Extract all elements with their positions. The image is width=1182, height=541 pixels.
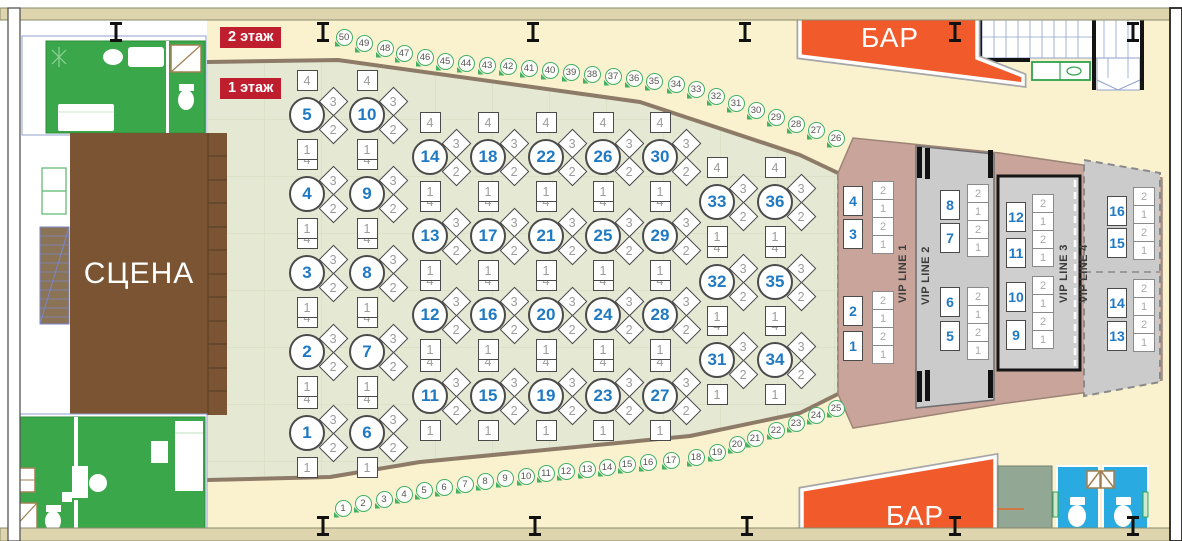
perimeter-seat-18[interactable]: 18 (688, 449, 705, 466)
vip-seat-column-3: 2121 (967, 185, 989, 257)
perimeter-seat-25[interactable]: 25 (828, 400, 845, 417)
table-number: 10 (349, 97, 385, 133)
perimeter-seat-38[interactable]: 38 (584, 66, 601, 83)
perimeter-seat-33[interactable]: 33 (688, 81, 705, 98)
table-number: 2 (289, 334, 325, 370)
vip-line-2-label: VIP LINE 2 (920, 246, 932, 305)
floor-1-badge: 1 этаж (220, 78, 281, 99)
vip-seat-1[interactable]: 1 (872, 309, 894, 328)
perimeter-seat-11[interactable]: 11 (538, 465, 555, 482)
perimeter-seat-49[interactable]: 49 (356, 35, 373, 52)
seat-4[interactable]: 4 (297, 70, 318, 91)
perimeter-seat-34[interactable]: 34 (668, 76, 685, 93)
seat-1[interactable]: 1 (297, 297, 318, 318)
vip-seat-1[interactable]: 1 (1133, 333, 1155, 352)
vip-line-1-label: VIP LINE 1 (897, 244, 909, 303)
table-number: 13 (412, 218, 448, 254)
vip-seat-2[interactable]: 2 (967, 287, 989, 306)
toilet-fixture-1 (1053, 492, 1058, 517)
vip-seat-1[interactable]: 1 (1032, 330, 1054, 349)
vip-seat-column-2: 2121 (872, 292, 894, 364)
seat-1[interactable]: 1 (297, 376, 318, 397)
table-number: 30 (642, 139, 678, 175)
perimeter-seat-50[interactable]: 50 (336, 29, 353, 46)
perimeter-seat-16[interactable]: 16 (640, 454, 657, 471)
perimeter-seat-37[interactable]: 37 (605, 68, 622, 85)
vip-line-3-label: VIP LINE 3 (1058, 244, 1070, 303)
table-number: 29 (642, 218, 678, 254)
perimeter-seat-17[interactable]: 17 (663, 452, 680, 469)
table-number: 3 (289, 255, 325, 291)
backstage-staircase (40, 227, 69, 324)
vip-seat-column-6: 2121 (1032, 277, 1054, 349)
vip-seat-2[interactable]: 2 (967, 184, 989, 203)
vip-table-15[interactable]: 15 (1107, 228, 1127, 258)
perimeter-seat-23[interactable]: 23 (788, 415, 805, 432)
seat-1[interactable]: 1 (707, 226, 728, 247)
table-number: 6 (349, 415, 385, 451)
seat-1[interactable]: 1 (478, 181, 499, 202)
seat-1[interactable]: 1 (420, 181, 441, 202)
seat-1[interactable]: 1 (593, 339, 614, 360)
table-number: 35 (757, 264, 793, 300)
vip-seat-1[interactable]: 1 (1032, 212, 1054, 231)
perimeter-seat-12[interactable]: 12 (558, 463, 575, 480)
seat-1[interactable]: 1 (650, 260, 671, 281)
perimeter-seat-46[interactable]: 46 (417, 49, 434, 66)
seat-1[interactable]: 1 (650, 181, 671, 202)
table-number: 26 (585, 139, 621, 175)
perimeter-seat-14[interactable]: 14 (599, 459, 616, 476)
perimeter-seat-44[interactable]: 44 (458, 55, 475, 72)
perimeter-seat-20[interactable]: 20 (729, 436, 746, 453)
perimeter-seat-24[interactable]: 24 (808, 407, 825, 424)
table-number: 20 (528, 297, 564, 333)
vip-seat-2[interactable]: 2 (872, 327, 894, 346)
perimeter-seat-42[interactable]: 42 (500, 58, 517, 75)
seat-1[interactable]: 1 (420, 339, 441, 360)
seat-1[interactable]: 1 (357, 297, 378, 318)
seat-1[interactable]: 1 (420, 260, 441, 281)
perimeter-seat-4[interactable]: 4 (396, 486, 413, 503)
perimeter-seat-35[interactable]: 35 (646, 73, 663, 90)
vip-line-4-label: VIP LINE 4 (1078, 244, 1090, 303)
seat-4[interactable]: 4 (707, 157, 728, 178)
seat-4[interactable]: 4 (650, 112, 671, 133)
table-number: 17 (470, 218, 506, 254)
table-number: 34 (757, 342, 793, 378)
vip-seat-column-7: 2121 (1133, 188, 1155, 260)
vip-seat-2[interactable]: 2 (1032, 312, 1054, 331)
perimeter-seat-8[interactable]: 8 (477, 473, 494, 490)
seat-1[interactable]: 1 (707, 384, 728, 405)
seat-1[interactable]: 1 (765, 226, 786, 247)
perimeter-seat-28[interactable]: 28 (788, 116, 805, 133)
wall-bottom (0, 528, 1182, 541)
vip-seat-column-4: 2121 (967, 288, 989, 360)
table-number: 16 (470, 297, 506, 333)
vip-table-4[interactable]: 4 (843, 186, 863, 216)
vip-table-2[interactable]: 2 (843, 296, 863, 326)
vip-table-10[interactable]: 10 (1006, 282, 1026, 312)
perimeter-seat-30[interactable]: 30 (748, 102, 765, 119)
floor-2-badge: 2 этаж (220, 27, 281, 48)
perimeter-seat-36[interactable]: 36 (626, 70, 643, 87)
storage-room (998, 466, 1052, 538)
vip-seat-column-8: 2121 (1133, 280, 1155, 352)
perimeter-seat-6[interactable]: 6 (436, 479, 453, 496)
perimeter-seat-43[interactable]: 43 (479, 57, 496, 74)
vip-seat-2[interactable]: 2 (1032, 194, 1054, 213)
toilet-doors (1087, 471, 1114, 488)
perimeter-seat-40[interactable]: 40 (542, 62, 559, 79)
seat-1[interactable]: 1 (297, 218, 318, 239)
perimeter-seat-15[interactable]: 15 (619, 456, 636, 473)
perimeter-seat-21[interactable]: 21 (747, 430, 764, 447)
vip-seat-2[interactable]: 2 (872, 217, 894, 236)
perimeter-seat-5[interactable]: 5 (416, 482, 433, 499)
vip-seat-2[interactable]: 2 (872, 291, 894, 310)
corridor-right (1170, 8, 1182, 541)
vip-seat-2[interactable]: 2 (967, 220, 989, 239)
perimeter-seat-19[interactable]: 19 (709, 444, 726, 461)
wall-left (8, 8, 20, 541)
coat-check-counter (1032, 62, 1090, 80)
vip-seat-1[interactable]: 1 (1133, 205, 1155, 224)
table-number: 25 (585, 218, 621, 254)
seat-1[interactable]: 1 (357, 376, 378, 397)
vip-seat-2[interactable]: 2 (967, 323, 989, 342)
seat-1[interactable]: 1 (765, 384, 786, 405)
vip-table-5[interactable]: 5 (940, 321, 960, 351)
table-number: 21 (528, 218, 564, 254)
perimeter-seat-1[interactable]: 1 (335, 500, 352, 517)
table-number: 22 (528, 139, 564, 175)
vip-seat-1[interactable]: 1 (1133, 297, 1155, 316)
vip-seat-column-1: 2121 (872, 182, 894, 254)
vip-seat-2[interactable]: 2 (1133, 315, 1155, 334)
vip-seat-1[interactable]: 1 (967, 341, 989, 360)
vip-table-11[interactable]: 11 (1006, 238, 1026, 268)
perimeter-seat-47[interactable]: 47 (396, 45, 413, 62)
table-number: 8 (349, 255, 385, 291)
vip-table-16[interactable]: 16 (1107, 196, 1127, 226)
seat-4[interactable]: 4 (593, 112, 614, 133)
vip-seat-1[interactable]: 1 (872, 199, 894, 218)
table-number: 12 (412, 297, 448, 333)
seat-1[interactable]: 1 (297, 457, 318, 478)
seat-4[interactable]: 4 (765, 157, 786, 178)
perimeter-seat-7[interactable]: 7 (457, 476, 474, 493)
vip-table-13[interactable]: 13 (1107, 321, 1127, 351)
perimeter-seat-39[interactable]: 39 (563, 64, 580, 81)
perimeter-seat-48[interactable]: 48 (377, 40, 394, 57)
perimeter-seat-29[interactable]: 29 (768, 109, 785, 126)
vip-seat-column-5: 2121 (1032, 195, 1054, 267)
seat-1[interactable]: 1 (707, 306, 728, 327)
seat-1[interactable]: 1 (478, 260, 499, 281)
bar-top-label: БАР (815, 17, 965, 59)
seat-1[interactable]: 1 (478, 339, 499, 360)
vip-table-3[interactable]: 3 (843, 219, 863, 249)
perimeter-seat-10[interactable]: 10 (518, 468, 535, 485)
seat-1[interactable]: 1 (765, 306, 786, 327)
table-number: 9 (349, 176, 385, 212)
table-number: 1 (289, 415, 325, 451)
perimeter-seat-31[interactable]: 31 (728, 95, 745, 112)
vip-seat-1[interactable]: 1 (872, 235, 894, 254)
vip-table-6[interactable]: 6 (940, 287, 960, 317)
seat-1[interactable]: 1 (357, 139, 378, 160)
seat-1[interactable]: 1 (650, 420, 671, 441)
vip-seat-1[interactable]: 1 (1032, 294, 1054, 313)
vip-seat-2[interactable]: 2 (1133, 187, 1155, 206)
table-number: 32 (699, 264, 735, 300)
table-number: 24 (585, 297, 621, 333)
perimeter-seat-9[interactable]: 9 (497, 470, 514, 487)
vip-table-7[interactable]: 7 (940, 223, 960, 253)
perimeter-seat-3[interactable]: 3 (376, 491, 393, 508)
seat-1[interactable]: 1 (536, 181, 557, 202)
vip-table-1[interactable]: 1 (843, 331, 863, 361)
toilet-fixture-2 (1143, 492, 1148, 517)
seat-4[interactable]: 4 (420, 112, 441, 133)
vip-seat-2[interactable]: 2 (1032, 230, 1054, 249)
seat-1[interactable]: 1 (593, 420, 614, 441)
vip-seat-1[interactable]: 1 (967, 202, 989, 221)
vip-seat-2[interactable]: 2 (872, 181, 894, 200)
table-number: 31 (699, 342, 735, 378)
seat-1[interactable]: 1 (536, 260, 557, 281)
vip-seat-1[interactable]: 1 (872, 345, 894, 364)
table-number: 28 (642, 297, 678, 333)
perimeter-seat-32[interactable]: 32 (708, 88, 725, 105)
seat-4[interactable]: 4 (357, 70, 378, 91)
vip-table-8[interactable]: 8 (940, 190, 960, 220)
perimeter-seat-26[interactable]: 26 (828, 130, 845, 147)
vip-seat-2[interactable]: 2 (1133, 279, 1155, 298)
perimeter-seat-41[interactable]: 41 (521, 60, 538, 77)
vip-seat-1[interactable]: 1 (967, 305, 989, 324)
vip-table-14[interactable]: 14 (1107, 288, 1127, 318)
table-number: 36 (757, 184, 793, 220)
seat-1[interactable]: 1 (420, 420, 441, 441)
perimeter-seat-13[interactable]: 13 (579, 461, 596, 478)
table-number: 33 (699, 184, 735, 220)
table-number: 27 (642, 378, 678, 414)
table-number: 14 (412, 139, 448, 175)
seat-1[interactable]: 1 (478, 420, 499, 441)
seat-1[interactable]: 1 (536, 420, 557, 441)
seat-1[interactable]: 1 (357, 218, 378, 239)
seat-4[interactable]: 4 (536, 112, 557, 133)
wall-top (0, 8, 1182, 20)
vip-table-9[interactable]: 9 (1006, 320, 1026, 350)
vip-seat-1[interactable]: 1 (967, 238, 989, 257)
table-number: 11 (412, 378, 448, 414)
table-number: 4 (289, 176, 325, 212)
vip-seat-1[interactable]: 1 (1133, 241, 1155, 260)
venue-floor-plan: 4321143212432134321443215432164321743218… (0, 0, 1182, 541)
vip-seat-2[interactable]: 2 (1032, 276, 1054, 295)
table-number: 18 (470, 139, 506, 175)
table-number: 19 (528, 378, 564, 414)
table-number: 7 (349, 334, 385, 370)
perimeter-seat-2[interactable]: 2 (355, 495, 372, 512)
seat-1[interactable]: 1 (593, 260, 614, 281)
stage-label: СЦЕНА (70, 133, 208, 415)
table-number: 5 (289, 97, 325, 133)
vip-table-12[interactable]: 12 (1006, 202, 1026, 232)
seat-1[interactable]: 1 (593, 181, 614, 202)
vip-seat-2[interactable]: 2 (1133, 223, 1155, 242)
bar-bottom-label: БАР (845, 496, 985, 536)
seat-1[interactable]: 1 (650, 339, 671, 360)
perimeter-seat-27[interactable]: 27 (808, 122, 825, 139)
table-number: 23 (585, 378, 621, 414)
perimeter-seat-22[interactable]: 22 (768, 422, 785, 439)
table-number: 15 (470, 378, 506, 414)
seat-1[interactable]: 1 (297, 139, 318, 160)
seat-4[interactable]: 4 (478, 112, 499, 133)
seat-1[interactable]: 1 (536, 339, 557, 360)
vip-seat-1[interactable]: 1 (1032, 248, 1054, 267)
seat-1[interactable]: 1 (357, 457, 378, 478)
perimeter-seat-45[interactable]: 45 (437, 53, 454, 70)
